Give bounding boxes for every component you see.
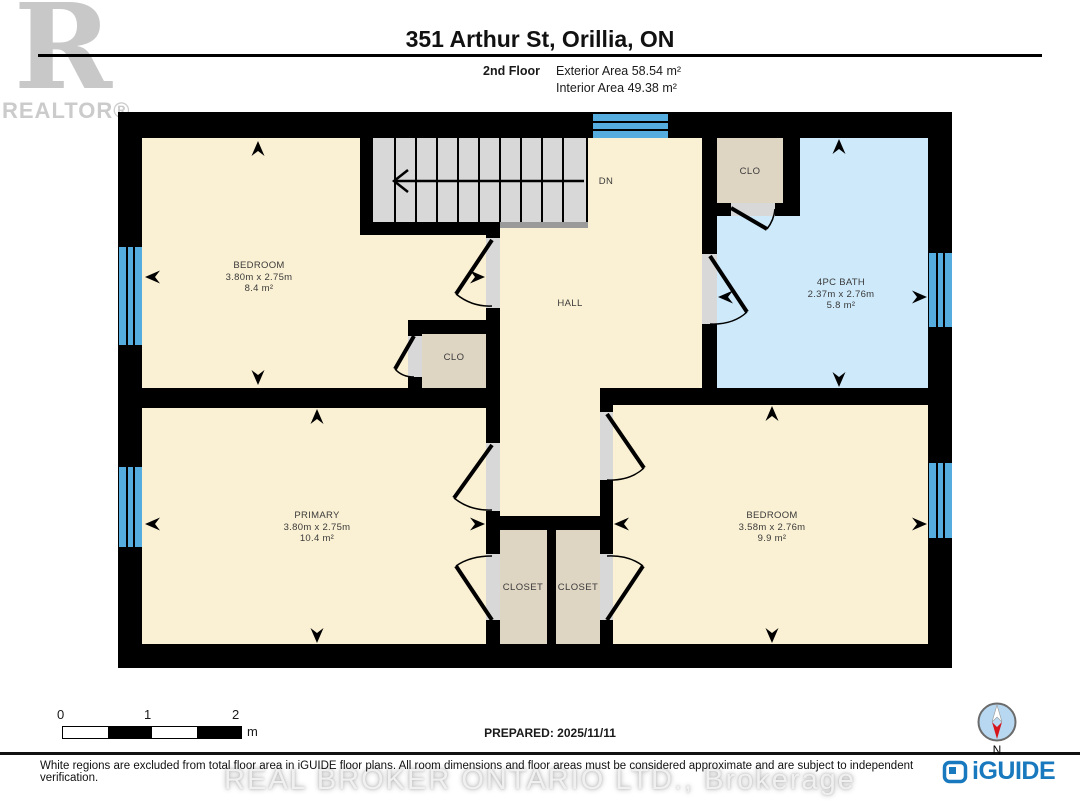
dimension-arrows <box>145 139 927 643</box>
plan-vector-overlay <box>0 0 1080 810</box>
door-swings <box>395 208 775 620</box>
floor-plan-page: { "header": { "realtor_logo_letter": "R"… <box>0 0 1080 810</box>
stairs-down-arrow <box>394 170 584 192</box>
